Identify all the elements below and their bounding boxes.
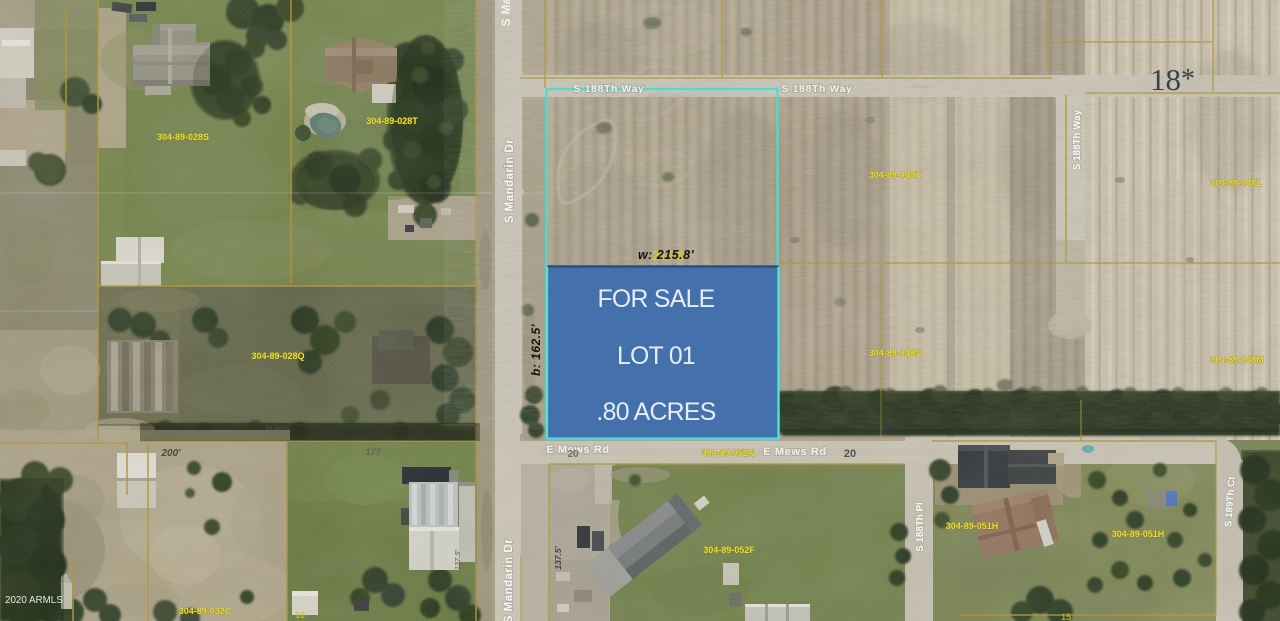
svg-text:10: 10	[295, 610, 305, 620]
svg-text:S 188Th Way: S 188Th Way	[574, 83, 645, 95]
svg-text:S 188Th Pl: S 188Th Pl	[915, 502, 926, 552]
svg-text:.80 ACRES: .80 ACRES	[596, 399, 715, 426]
svg-text:200': 200'	[160, 448, 181, 459]
svg-text:trk 22: trk 22	[660, 12, 673, 18]
svg-text:w: 215.8': w: 215.8'	[638, 248, 695, 262]
svg-text:15: 15	[1061, 612, 1071, 621]
svg-text:304-89-028Q: 304-89-028Q	[251, 351, 304, 361]
svg-text:Mandarin Peaks Est: Mandarin Peaks Est	[648, 93, 693, 99]
svg-text:S Mandarin Dr: S Mandarin Dr	[503, 539, 515, 621]
svg-text:304-89-028S: 304-89-028S	[157, 132, 209, 142]
svg-text:LOT 01: LOT 01	[617, 343, 695, 370]
svg-text:E Mews Rd: E Mews Rd	[763, 446, 826, 458]
svg-text:31.50Ac: 31.50Ac	[266, 425, 291, 432]
svg-text:S 188Th Way: S 188Th Way	[1072, 109, 1083, 170]
svg-text:2020 ARMLS: 2020 ARMLS	[5, 595, 63, 606]
svg-text:304-89-048L: 304-89-048L	[1210, 178, 1262, 188]
svg-text:Lorem unit 22: Lorem unit 22	[905, 84, 936, 90]
svg-text:20: 20	[567, 449, 579, 460]
svg-text:FOR SALE: FOR SALE	[597, 286, 714, 313]
svg-text:304-89-051H: 304-89-051H	[946, 521, 999, 531]
svg-text:304-89-028T: 304-89-028T	[366, 116, 418, 126]
svg-text:20: 20	[844, 448, 856, 460]
svg-text:S 188Th Way: S 188Th Way	[782, 83, 853, 95]
svg-text:304-89-052F: 304-89-052F	[703, 545, 755, 555]
svg-text:137.5': 137.5'	[553, 545, 563, 569]
svg-text:137.5': 137.5'	[453, 550, 462, 571]
svg-text:b: 162.5': b: 162.5'	[529, 323, 543, 376]
svg-text:no 18: no 18	[1055, 16, 1068, 22]
svg-text:304-89-048K: 304-89-048K	[869, 170, 922, 180]
svg-text:304-89-048N: 304-89-048N	[869, 348, 922, 358]
svg-text:S Mandarin Dr: S Mandarin Dr	[504, 139, 516, 223]
svg-text:18*: 18*	[1150, 62, 1195, 97]
svg-text:304-89-052N: 304-89-052N	[702, 448, 755, 458]
svg-text:304-89-048M: 304-89-048M	[1210, 355, 1264, 365]
svg-text:177: 177	[365, 447, 381, 457]
svg-text:BOUNDARY ADJ 30-449: BOUNDARY ADJ 30-449	[1140, 436, 1196, 442]
svg-text:304-89-051H: 304-89-051H	[1112, 529, 1165, 539]
svg-text:304-89-032C: 304-89-032C	[179, 606, 232, 616]
svg-text:S Mandarin Dr: S Mandarin Dr	[501, 0, 513, 26]
